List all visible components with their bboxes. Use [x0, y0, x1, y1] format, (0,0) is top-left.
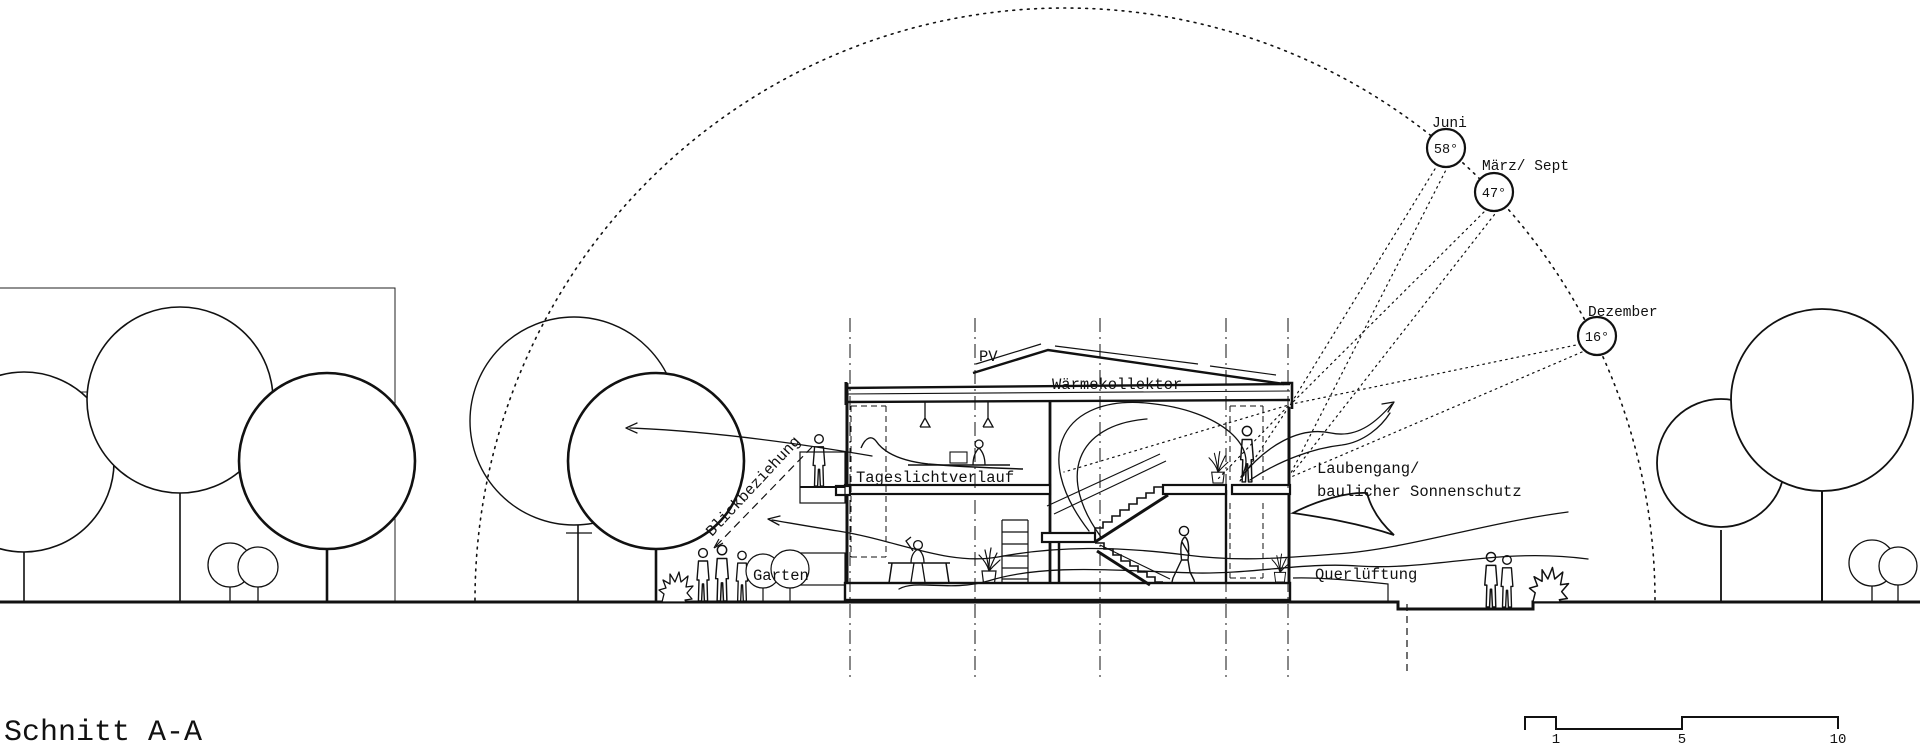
potted-plant — [979, 548, 1000, 583]
seated-person-upper — [975, 440, 983, 448]
upper-flight-steps — [1095, 487, 1163, 534]
staircase — [1042, 454, 1170, 585]
ground-line — [0, 602, 1920, 609]
label-pergola-2: baulicher Sonnenschutz — [1317, 483, 1522, 501]
shrub — [208, 543, 278, 602]
architectural-section-sheet: Schnitt A-A PV Wärmekollektor Tageslicht… — [0, 0, 1920, 746]
label-pv: PV — [979, 348, 998, 366]
label-garden: Garten — [753, 567, 809, 585]
label-pergola-1: Laubengang/ — [1317, 460, 1419, 478]
scale-tick-1: 1 — [1552, 732, 1560, 746]
person-on-balcony — [813, 435, 825, 486]
upper-floor-slab-right — [1163, 485, 1226, 494]
seated-person-lower — [914, 541, 923, 550]
left-shrub — [659, 572, 693, 602]
ground-room-interior — [888, 520, 1028, 583]
heat-collector-line — [1055, 346, 1276, 375]
table — [888, 563, 950, 583]
upper-flight-stringer — [1095, 495, 1168, 542]
drawing-title: Schnitt A-A — [4, 716, 202, 746]
person-standing — [697, 549, 709, 601]
angle-juni: 58° — [1434, 143, 1458, 158]
label-daylight: Tageslichtverlauf — [856, 469, 1014, 487]
angle-dezember: 16° — [1585, 331, 1609, 346]
scale-tick-10: 10 — [1830, 732, 1847, 746]
stair-landing — [1042, 533, 1095, 542]
person-standing — [716, 545, 729, 601]
scale-tick-5: 5 — [1678, 732, 1686, 746]
scale-bar — [1525, 717, 1838, 730]
handrails — [1047, 454, 1170, 579]
tree — [568, 373, 744, 602]
laubengang-slab — [1232, 485, 1290, 494]
label-heat-collector: Wärmekollektor — [1052, 376, 1182, 394]
right-shrub — [1529, 568, 1568, 603]
pendant-lamp — [920, 402, 930, 427]
person-standing — [1501, 556, 1513, 607]
label-cross-ventilation: Querlüftung — [1315, 566, 1417, 584]
angle-maerz-sept: 47° — [1482, 187, 1506, 202]
person-standing — [736, 551, 747, 601]
sun-rays — [1064, 164, 1582, 481]
section-drawing: Schnitt A-A PV Wärmekollektor Tageslicht… — [0, 0, 1920, 746]
pendant-lamp — [983, 402, 993, 427]
label-sun-juni: Juni — [1432, 116, 1467, 132]
shrub — [1849, 540, 1917, 602]
upper-room-interior — [861, 402, 1023, 469]
label-sun-dezember: Dezember — [1588, 305, 1658, 321]
grid-axes — [850, 318, 1288, 677]
person-standing — [1485, 552, 1497, 606]
label-sun-maerz-sept: März/ Sept — [1482, 159, 1569, 175]
cross-ventilation-flow — [772, 512, 1568, 559]
desk-screen — [950, 452, 967, 463]
